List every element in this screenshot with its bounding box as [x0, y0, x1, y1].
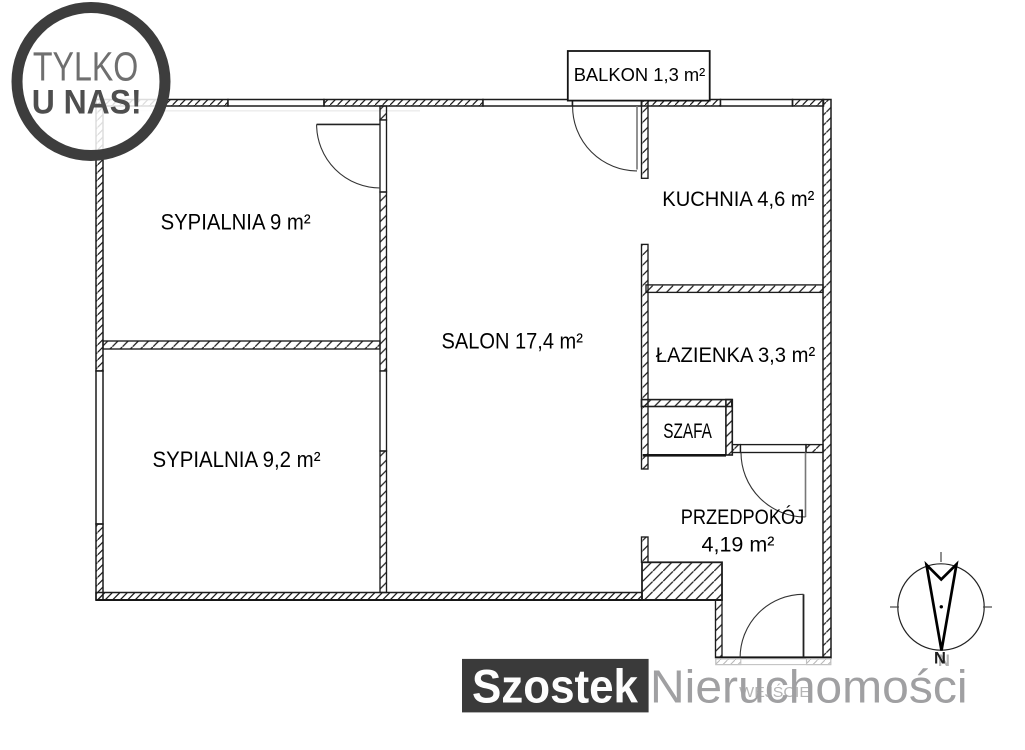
svg-text:SYPIALNIA 9 m²: SYPIALNIA 9 m² — [161, 210, 311, 235]
svg-text:U NAS!: U NAS! — [32, 83, 142, 121]
svg-text:ŁAZIENKA 3,3 m²: ŁAZIENKA 3,3 m² — [656, 343, 815, 367]
svg-text:4,19 m²: 4,19 m² — [702, 533, 775, 556]
svg-text:KUCHNIA 4,6 m²: KUCHNIA 4,6 m² — [662, 187, 814, 211]
svg-text:BALKON 1,3 m²: BALKON 1,3 m² — [574, 64, 706, 85]
svg-text:SZAFA: SZAFA — [663, 420, 712, 443]
svg-text:SALON 17,4 m²: SALON 17,4 m² — [442, 328, 583, 353]
svg-text:SYPIALNIA 9,2 m²: SYPIALNIA 9,2 m² — [153, 447, 321, 472]
svg-text:PRZEDPOKÓJ: PRZEDPOKÓJ — [681, 506, 805, 529]
svg-text:Szostek: Szostek — [472, 660, 639, 713]
svg-text:Nieruchomości: Nieruchomości — [650, 661, 968, 713]
